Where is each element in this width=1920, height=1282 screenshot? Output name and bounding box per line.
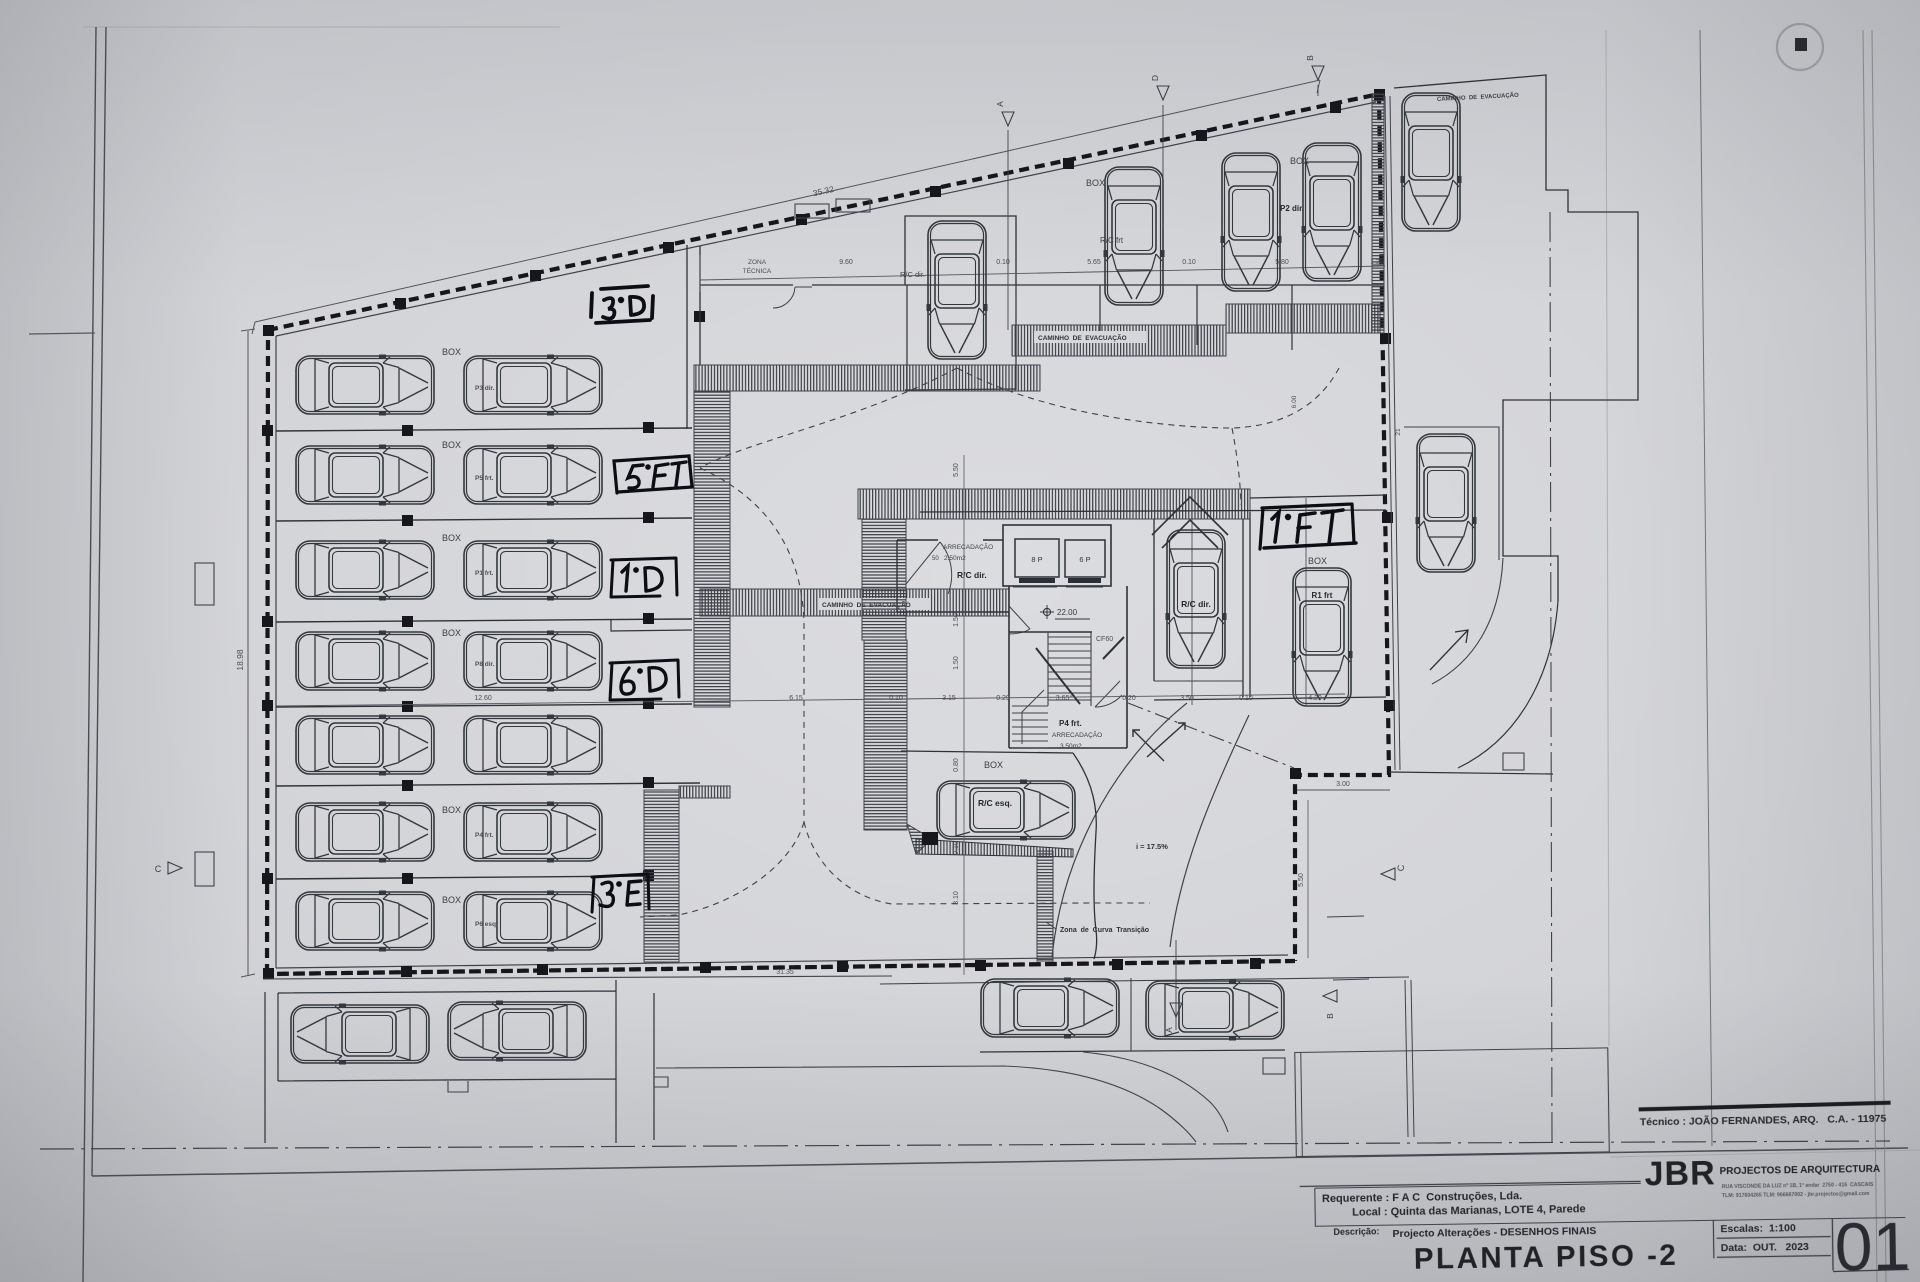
svg-text:6.15: 6.15: [789, 695, 803, 702]
svg-text:0.10: 0.10: [1182, 259, 1196, 266]
svg-text:0.10: 0.10: [953, 841, 960, 855]
svg-text:ARRECADAÇÃO: ARRECADAÇÃO: [1052, 730, 1102, 739]
svg-text:3.50: 3.50: [1180, 695, 1194, 702]
svg-text:R/C dir.: R/C dir.: [900, 270, 925, 279]
svg-text:3.10: 3.10: [953, 891, 960, 905]
svg-text:A: A: [995, 101, 1005, 107]
svg-text:P1 frt.: P1 frt.: [475, 570, 494, 577]
svg-text:BOX: BOX: [442, 533, 461, 543]
svg-text:1.50: 1.50: [953, 613, 960, 627]
svg-text:P3 dir.: P3 dir.: [475, 385, 495, 392]
svg-text:i = 17.5%: i = 17.5%: [1136, 842, 1168, 851]
svg-text:R1 frt: R1 frt: [1312, 591, 1333, 600]
svg-text:P4 frt.: P4 frt.: [1059, 719, 1082, 728]
svg-text:R/C frt: R/C frt: [1100, 236, 1124, 245]
svg-text:3.65°: 3.65°: [1056, 694, 1073, 702]
svg-text:01: 01: [1834, 1208, 1911, 1282]
svg-text:2.50m2: 2.50m2: [944, 555, 966, 562]
svg-text:21: 21: [1395, 428, 1402, 436]
svg-text:ZONA: ZONA: [748, 259, 767, 266]
svg-text:P4 frt.: P4 frt.: [475, 832, 494, 839]
svg-text:Data: OUT. 2023: Data: OUT. 2023: [1721, 1241, 1809, 1254]
svg-text:C: C: [155, 864, 162, 874]
svg-text:TÉCNICA: TÉCNICA: [743, 266, 772, 275]
svg-text:Escalas: 1:100: Escalas: 1:100: [1720, 1222, 1796, 1235]
svg-text:P6 esq.: P6 esq.: [475, 921, 498, 928]
svg-text:P8 dir.: P8 dir.: [475, 661, 495, 668]
svg-text:0.29: 0.29: [996, 695, 1010, 702]
svg-text:BOX: BOX: [442, 628, 461, 638]
svg-text:5.50: 5.50: [953, 463, 960, 477]
svg-text:B: B: [1305, 55, 1315, 61]
svg-text:JBR: JBR: [1644, 1154, 1716, 1193]
svg-text:BOX: BOX: [1308, 556, 1327, 566]
svg-text:6 P: 6 P: [1079, 555, 1090, 564]
svg-text:3.00: 3.00: [1336, 781, 1350, 788]
svg-text:BOX: BOX: [442, 895, 461, 905]
svg-text:B: B: [1325, 1013, 1335, 1019]
svg-text:Zona de Curva Transição: Zona de Curva Transição: [1060, 927, 1149, 934]
svg-text:9.60: 9.60: [839, 259, 853, 266]
svg-text:P5 frt.: P5 frt.: [475, 475, 494, 482]
svg-text:18.98: 18.98: [235, 649, 245, 671]
svg-text:1.50: 1.50: [953, 656, 960, 670]
svg-text:P2 dir.: P2 dir.: [1280, 204, 1304, 213]
svg-text:CAMINHO DE EVACUAÇÃO: CAMINHO DE EVACUAÇÃO: [1038, 333, 1127, 342]
svg-text:BOX: BOX: [1086, 178, 1105, 188]
svg-text:5.50: 5.50: [1298, 873, 1305, 887]
svg-text:50: 50: [932, 556, 939, 562]
svg-text:BOX: BOX: [442, 440, 461, 450]
svg-text:6.00: 6.00: [1291, 395, 1298, 408]
svg-text:A: A: [1164, 1027, 1174, 1033]
svg-text:PLANTA PISO -2: PLANTA PISO -2: [1414, 1239, 1679, 1276]
svg-text:Descrição:: Descrição:: [1333, 1226, 1379, 1237]
svg-text:3.15: 3.15: [942, 695, 956, 702]
svg-text:BOX: BOX: [1290, 156, 1309, 166]
svg-text:3.50m2: 3.50m2: [1060, 743, 1082, 750]
svg-text:8 P: 8 P: [1031, 555, 1042, 564]
svg-text:BOX: BOX: [442, 805, 461, 815]
svg-text:0.80: 0.80: [953, 758, 960, 772]
svg-text:12.60: 12.60: [474, 695, 492, 702]
svg-text:5.65: 5.65: [1087, 259, 1101, 266]
svg-text:0.10: 0.10: [1239, 695, 1253, 702]
svg-text:4.20: 4.20: [1308, 695, 1322, 702]
svg-text:31.35: 31.35: [776, 969, 794, 976]
svg-text:D: D: [1150, 75, 1160, 81]
svg-text:ARRECADAÇÃO: ARRECADAÇÃO: [943, 542, 993, 551]
svg-text:BOX: BOX: [442, 347, 461, 357]
svg-text:CF60: CF60: [1096, 636, 1113, 643]
svg-text:R/C dir.: R/C dir.: [957, 570, 987, 580]
svg-text:R/C dir.: R/C dir.: [1181, 599, 1211, 609]
svg-text:R/C esq.: R/C esq.: [978, 798, 1012, 808]
svg-text:BOX: BOX: [984, 760, 1003, 770]
svg-text:0.20: 0.20: [1122, 695, 1136, 702]
svg-text:0.10: 0.10: [889, 695, 903, 702]
svg-text:C: C: [1396, 864, 1406, 871]
svg-text:22.00: 22.00: [1057, 608, 1078, 617]
